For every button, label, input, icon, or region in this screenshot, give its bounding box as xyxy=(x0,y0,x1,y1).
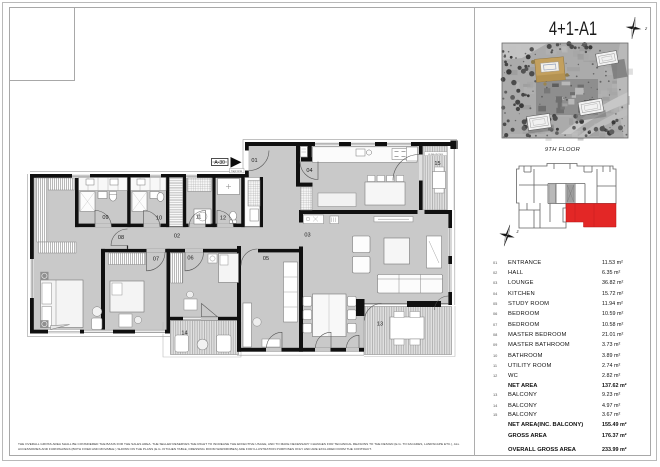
svg-text:09: 09 xyxy=(102,215,108,221)
svg-text:01: 01 xyxy=(251,158,257,164)
svg-text:08: 08 xyxy=(118,235,124,241)
svg-text:z: z xyxy=(644,26,648,31)
svg-text:15: 15 xyxy=(434,161,440,167)
svg-text:KLIMA UNITESI: KLIMA UNITESI xyxy=(428,153,443,156)
svg-text:A-30: A-30 xyxy=(214,160,225,166)
svg-text:z: z xyxy=(516,229,520,234)
svg-text:03: 03 xyxy=(304,233,310,239)
svg-text:11: 11 xyxy=(196,215,202,221)
svg-text:04: 04 xyxy=(306,168,312,174)
svg-text:12: 12 xyxy=(220,216,226,222)
svg-text:02: 02 xyxy=(174,234,180,240)
svg-text:Kapi Girisi: Kapi Girisi xyxy=(231,170,242,173)
svg-text:10: 10 xyxy=(156,216,162,222)
